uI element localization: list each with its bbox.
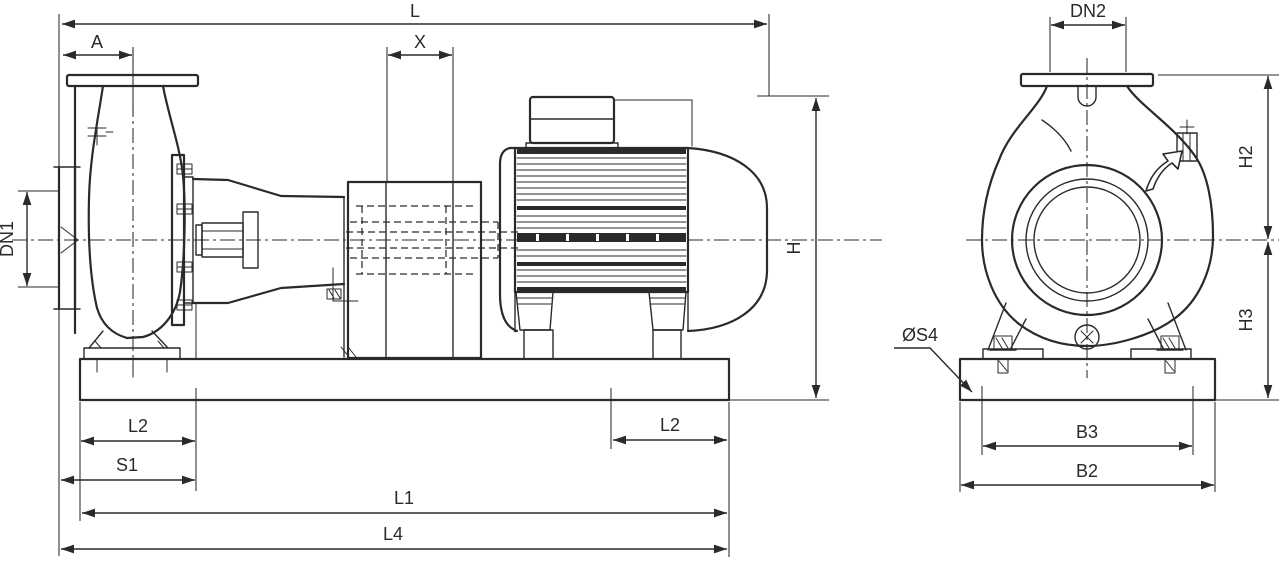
dimension-X: X [388,32,452,55]
dimension-L4: L4 [61,524,727,549]
pump-dimensional-drawing: L A X DN1 H L2 S1 L1 [0,0,1280,561]
dimension-S1: S1 [61,455,195,480]
dim-label-dn2: DN2 [1070,1,1106,21]
dimension-L2-left: L2 [81,416,195,441]
dim-label-h: H [784,242,804,255]
dim-label-b3: B3 [1076,422,1098,442]
holding-bolt-left [990,336,1016,373]
side-extension-lines [18,14,829,557]
dim-label-l: L [410,1,420,21]
rotation-arrow-icon [1146,151,1182,191]
dimension-L: L [62,1,767,24]
dimension-H3: H3 [1236,242,1268,398]
spiral-tongue [1042,120,1071,151]
bracket-support [327,197,356,357]
dim-label-h2: H2 [1236,145,1256,168]
dimension-H2: H2 [1236,76,1268,239]
dim-label-h3: H3 [1236,308,1256,331]
dimension-H: H [784,98,816,398]
baseplate [80,303,729,400]
motor-fins [517,149,686,292]
dimension-DN1: DN1 [0,192,27,286]
pump-foot [84,331,180,359]
side-view: L A X DN1 H L2 S1 L1 [0,1,882,557]
terminal-box [526,97,692,148]
motor-feet [516,292,686,359]
end-view: DN2 H2 H3 ØS4 B3 B2 [894,1,1279,492]
dimension-B2: B2 [961,461,1214,485]
dim-label-l1: L1 [394,488,414,508]
dim-label-dn1: DN1 [0,221,17,257]
dim-label-b2: B2 [1076,461,1098,481]
volute-casing [982,86,1213,349]
bearing-bracket [172,155,356,357]
dimension-L2-right: L2 [613,415,727,440]
dimension-DN2: DN2 [1051,1,1125,25]
dim-label-x: X [414,32,426,52]
vent-plug [88,119,113,145]
dim-label-s1: S1 [116,455,138,475]
dim-label-l2-right: L2 [660,415,680,435]
end-extension-lines [960,17,1279,492]
dimension-B3: B3 [983,422,1192,446]
coupling-guard [333,182,518,358]
dim-label-l4: L4 [383,524,403,544]
dim-label-a: A [91,32,103,52]
motor [500,97,767,359]
dim-label-s4: ØS4 [902,325,938,345]
dim-label-l2-left: L2 [128,416,148,436]
dimension-L1: L1 [82,488,727,513]
dimension-A: A [63,32,132,55]
holding-bolt-right [1157,336,1183,373]
technical-drawing-canvas: L A X DN1 H L2 S1 L1 [0,0,1280,561]
